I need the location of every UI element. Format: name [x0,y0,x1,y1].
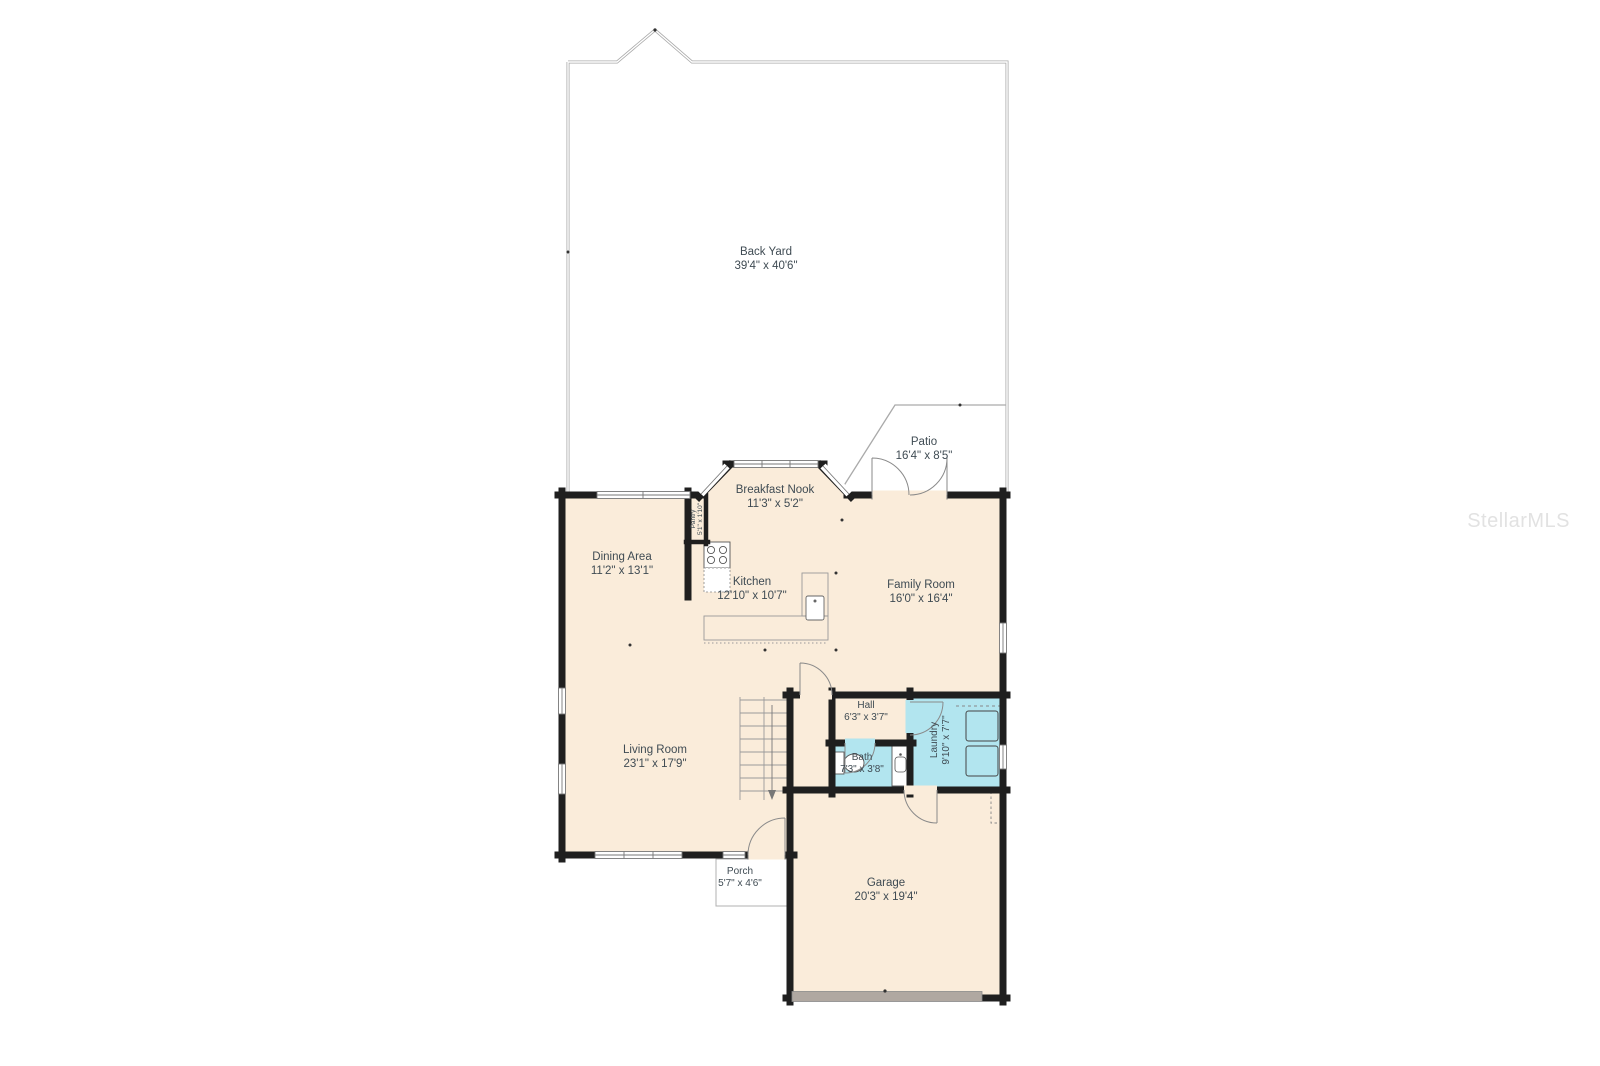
room-label-dining-area: Dining Area 11'2" x 13'1" [591,550,653,578]
room-name: Patio [896,435,953,449]
room-dims: 11'3" x 5'2" [736,497,815,511]
stellar-mls-watermark: StellarMLS [1440,510,1570,533]
room-name: Bath [840,752,884,764]
room-name: Kitchen [717,575,786,589]
room-dims: 39'4" x 40'6" [734,259,797,273]
room-dims: 23'1" x 17'9" [623,757,687,771]
room-label-living-room: Living Room 23'1" x 17'9" [623,743,687,771]
room-dims: 5'7" x 4'6" [718,878,762,890]
room-name: Breakfast Nook [736,483,815,497]
room-label-patio: Patio 16'4" x 8'5" [896,435,953,463]
room-name: Dining Area [591,550,653,564]
room-label-back-yard: Back Yard 39'4" x 40'6" [734,245,797,273]
room-name: Laundry [929,715,941,764]
floor-plan-page: Back Yard 39'4" x 40'6" Patio 16'4" x 8'… [0,0,1600,1066]
room-name: Porch [718,866,762,878]
room-name: Living Room [623,743,687,757]
room-label-pantry: Pantry 5'1" x 1'10" [690,503,704,535]
room-dims: 12'10" x 10'7" [717,589,786,603]
room-label-breakfast-nook: Breakfast Nook 11'3" x 5'2" [736,483,815,511]
room-label-bath: Bath 7'3" x 3'8" [840,752,884,776]
french-doors [872,458,909,495]
floor-plan [0,0,1600,1066]
room-dims: 7'3" x 3'8" [840,764,884,776]
room-dims: 16'4" x 8'5" [896,449,953,463]
room-label-hall: Hall 6'3" x 3'7" [844,700,888,724]
room-label-porch: Porch 5'7" x 4'6" [718,866,762,890]
vanity-icon [892,746,909,786]
room-name: Pantry [690,503,697,535]
room-label-family-room: Family Room 16'0" x 16'4" [887,578,955,606]
room-name: Garage [854,876,917,890]
room-dims: 20'3" x 19'4" [854,890,917,904]
room-name: Family Room [887,578,955,592]
room-name: Back Yard [734,245,797,259]
room-dims: 16'0" x 16'4" [887,592,955,606]
room-name: Hall [844,700,888,712]
sink-icon [806,596,824,620]
room-dims: 9'10" x 7'7" [941,715,953,764]
room-label-garage: Garage 20'3" x 19'4" [854,876,917,904]
room-label-laundry: Laundry 9'10" x 7'7" [929,715,953,764]
room-label-kitchen: Kitchen 12'10" x 10'7" [717,575,786,603]
room-dims: 11'2" x 13'1" [591,564,653,578]
garage-door [792,989,982,1001]
room-dims: 6'3" x 3'7" [844,712,888,724]
room-dims: 5'1" x 1'10" [697,503,704,535]
